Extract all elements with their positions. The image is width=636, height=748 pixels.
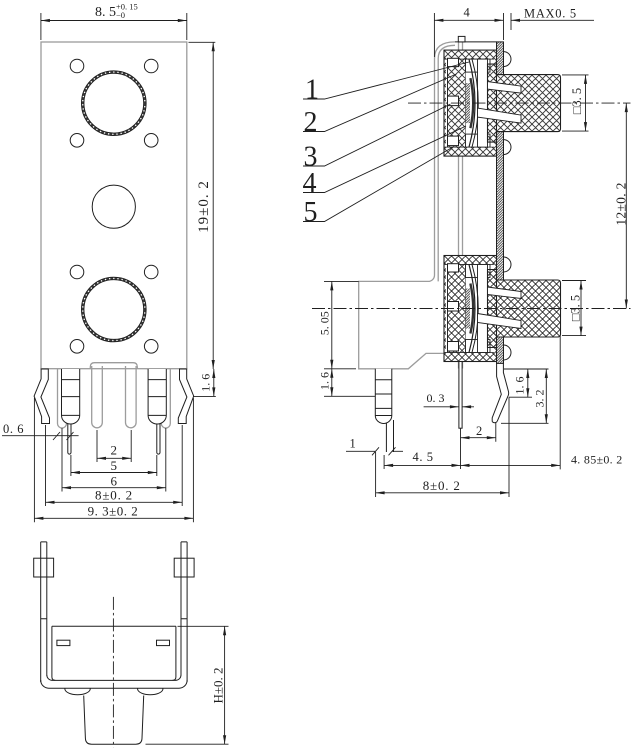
svg-text:1. 6: 1. 6 [513,377,527,395]
svg-text:5: 5 [304,197,318,228]
svg-text:12±0. 2: 12±0. 2 [614,182,629,225]
svg-text:2: 2 [304,107,318,138]
svg-text:4: 4 [303,168,317,199]
svg-text:8. 5: 8. 5 [95,5,116,20]
svg-text:0. 3: 0. 3 [427,391,445,405]
svg-text:6: 6 [111,473,118,488]
svg-text:3. 2: 3. 2 [533,390,547,408]
svg-text:1. 6: 1. 6 [318,372,332,390]
svg-text:19±0. 2: 19±0. 2 [196,180,212,233]
svg-text:8±0. 2: 8±0. 2 [423,478,461,493]
svg-text:4: 4 [464,6,471,20]
svg-text:9. 3±0. 2: 9. 3±0. 2 [88,504,139,519]
svg-text:8±0. 2: 8±0. 2 [95,488,133,503]
svg-text:2: 2 [111,443,118,458]
svg-text:1: 1 [305,75,319,106]
svg-text:□3. 5: □3. 5 [569,295,583,321]
svg-text:□3. 5: □3. 5 [570,88,584,114]
svg-text:1: 1 [350,437,356,451]
svg-text:5: 5 [111,458,118,473]
svg-text:2: 2 [476,424,482,438]
svg-text:4. 5: 4. 5 [413,450,434,464]
svg-text:1. 6: 1. 6 [199,374,213,392]
svg-text:MAX0. 5: MAX0. 5 [524,7,577,21]
svg-text:0. 6: 0. 6 [3,422,24,436]
svg-text:4. 85±0. 2: 4. 85±0. 2 [571,453,623,467]
svg-text:−0: −0 [116,10,125,20]
svg-text:5. 05: 5. 05 [318,311,332,335]
svg-text:H±0. 2: H±0. 2 [211,667,226,703]
